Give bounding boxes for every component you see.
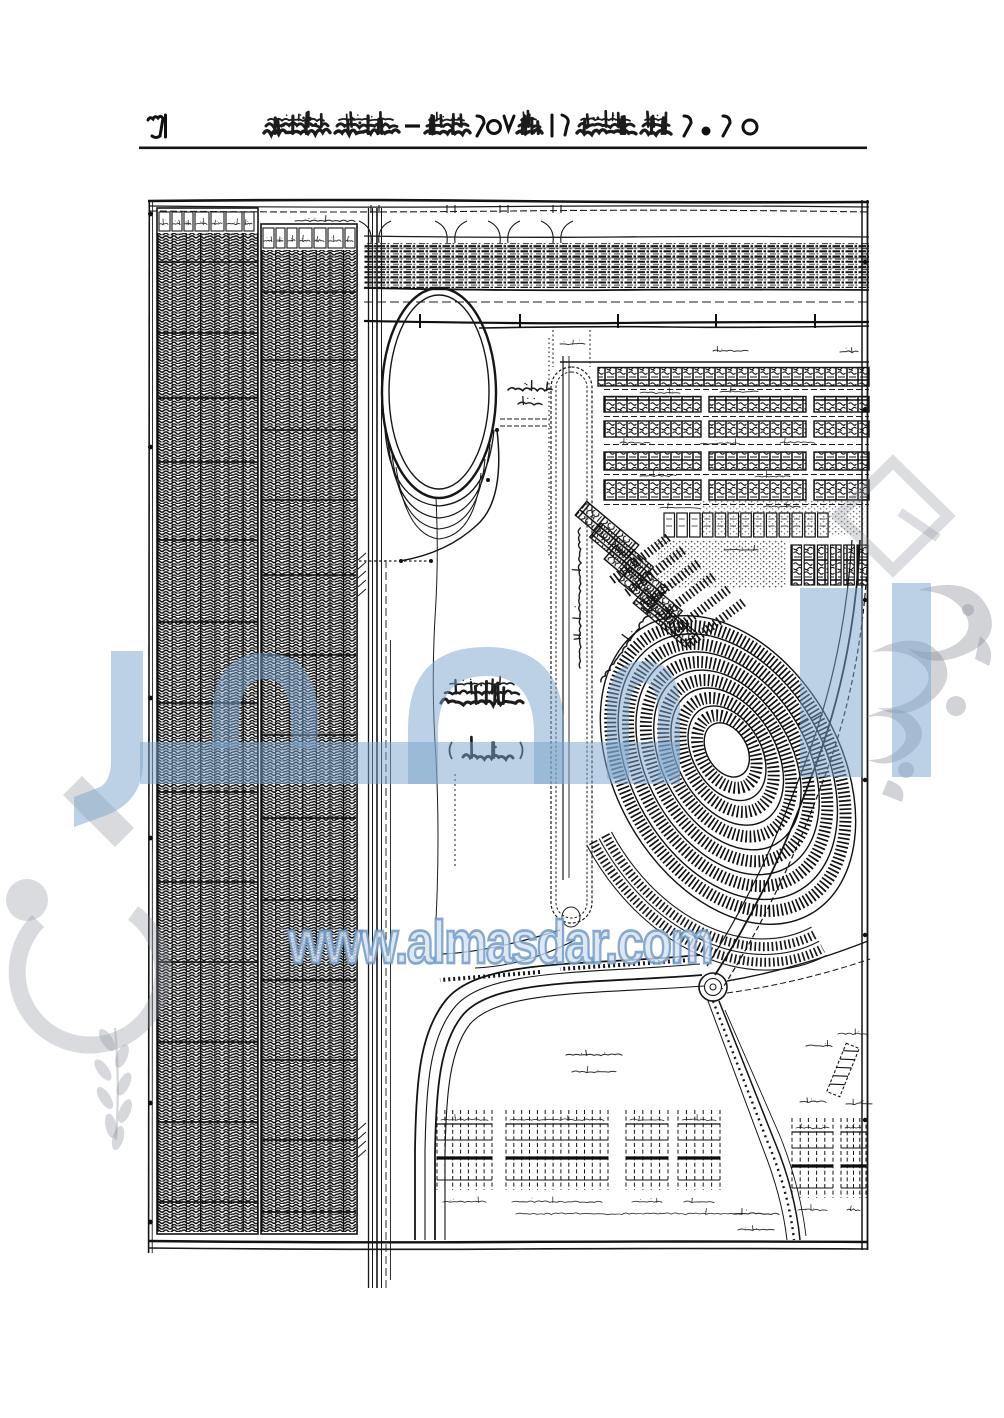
- svg-text:www.almasdar.com: www.almasdar.com: [287, 909, 712, 976]
